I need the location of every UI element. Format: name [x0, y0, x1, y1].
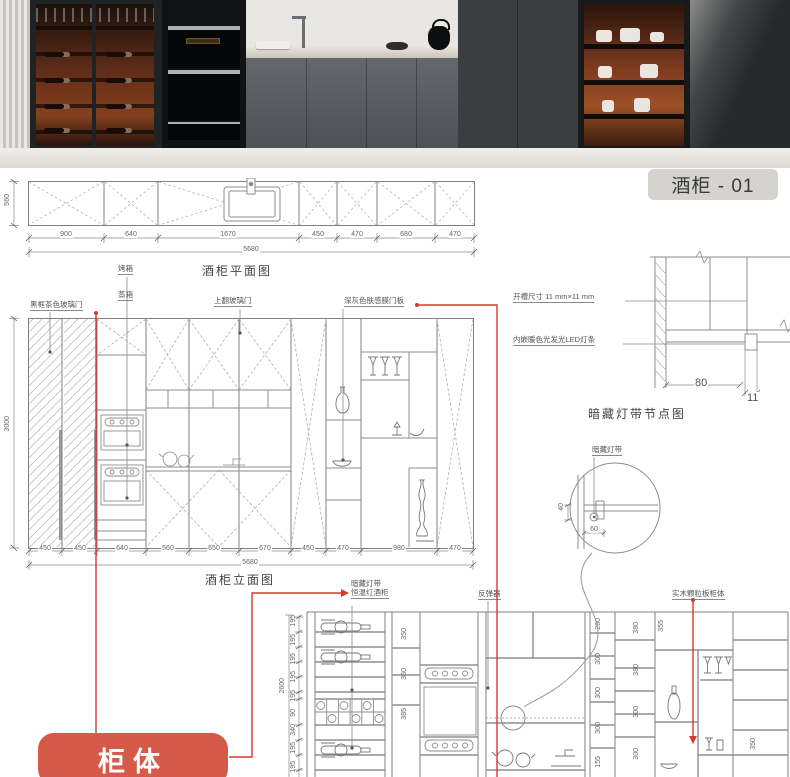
- bottom-elevation-drawing: [283, 580, 790, 777]
- label-oven: 烤箱: [118, 265, 133, 275]
- elev-dim: 450: [38, 545, 52, 552]
- stemware-rack: [36, 8, 154, 22]
- label-rebounder: 反弹器: [478, 590, 501, 600]
- model-badge: 酒柜 - 01: [648, 169, 778, 200]
- display-shelf-unit: [578, 0, 690, 152]
- model-badge-label: 酒柜 - 01: [671, 171, 754, 198]
- plan-dim: 450: [311, 231, 325, 238]
- warming-drawer: [168, 122, 240, 140]
- shelf-decor-glyphs: [333, 357, 434, 541]
- door-handle: [94, 430, 97, 540]
- kitchen-render: [0, 0, 790, 168]
- appliance-handles: [424, 668, 476, 751]
- bottom-dim: 380: [633, 622, 640, 634]
- elev-dim: 670: [258, 545, 272, 552]
- tall-cabinets: [458, 0, 578, 152]
- bottom-dim-350: 350: [750, 738, 757, 750]
- elev-dim: 640: [115, 545, 129, 552]
- elev-dim: 450: [73, 545, 87, 552]
- bottom-dim-355: 355: [658, 620, 665, 632]
- dishware: [598, 66, 612, 78]
- wine-glass-door-right: [96, 4, 154, 146]
- bottom-left-dims: 19519519519519590340195195: [289, 615, 298, 773]
- bottom-dim: 385: [401, 708, 408, 720]
- wine-bottle: [106, 128, 132, 133]
- wine-bottle: [44, 78, 70, 83]
- elev-total-dim: 5680: [241, 559, 259, 566]
- bottom-dim: 280: [595, 618, 602, 630]
- marble-floor: [0, 148, 790, 168]
- sink-symbol: [224, 178, 280, 221]
- display-shelf-interior: [584, 4, 684, 146]
- callout-circle: [501, 706, 525, 730]
- oven-stack-symbol: [97, 355, 146, 540]
- elev-dim: 470: [336, 545, 350, 552]
- elev-dim: 980: [392, 545, 406, 552]
- elev-dim: 560: [161, 545, 175, 552]
- cabinet-seam: [306, 58, 307, 150]
- label-led-strip: 内嵌暖色光发光LED灯条: [513, 336, 595, 346]
- plan-dim: 680: [399, 231, 413, 238]
- bottom-dim: 195: [290, 742, 297, 754]
- detail-dim-11: 11: [746, 392, 759, 404]
- built-in-steam-oven: [168, 70, 240, 120]
- bottom-colA-dims: 350350385: [400, 628, 409, 720]
- black-kettle: [428, 26, 450, 50]
- elevation-title: 酒柜立面图: [205, 571, 275, 588]
- elev-dim: 650: [207, 545, 221, 552]
- cabinet-seam: [416, 58, 417, 150]
- plan-dim: 470: [350, 231, 364, 238]
- bottom-dim: 300: [633, 706, 640, 718]
- dishware: [640, 64, 658, 78]
- wine-bottle: [106, 104, 132, 109]
- base-cabinets: [246, 58, 458, 150]
- built-in-oven: [168, 26, 240, 68]
- detail-dim-80: 80: [694, 377, 708, 389]
- bottom-colC-dims: 380380300300: [632, 622, 641, 760]
- shelf: [584, 114, 684, 119]
- shelf: [584, 80, 684, 85]
- item-glyphs: [492, 657, 732, 769]
- wine-bottle: [106, 78, 132, 83]
- cabinet-body-tag: 柜体: [38, 733, 228, 777]
- bottom-dim: 90: [290, 709, 297, 717]
- bottom-dim: 195: [290, 615, 297, 627]
- bottom-dim: 300: [595, 687, 602, 699]
- elev-dim: 470: [448, 545, 462, 552]
- cabinet-seam: [366, 58, 367, 150]
- bottom-dim: 350: [401, 628, 408, 640]
- bottom-dim: 195: [290, 653, 297, 665]
- door-handle: [59, 430, 62, 540]
- bottom-dim: 300: [595, 722, 602, 734]
- oven-display: [186, 38, 220, 44]
- label-wine-fridge-line: 恒温红酒柜: [351, 589, 389, 599]
- wine-bottle: [106, 52, 132, 57]
- bottom-height-dim: 2600: [279, 678, 286, 694]
- bottom-dim: 195: [290, 634, 297, 646]
- design-board: 酒柜 - 01 900 640 1670 450 470 680 470 568…: [0, 0, 790, 777]
- dishware: [620, 28, 640, 42]
- counter-items: [159, 452, 245, 467]
- cabinet-body-tag-label: 柜体: [98, 740, 168, 777]
- bottom-dim: 300: [633, 748, 640, 760]
- label-slot-size: 开槽尺寸 11 mm×11 mm: [513, 293, 594, 303]
- label-gray-panel: 深灰色肤感膜门板: [344, 297, 404, 307]
- faucet: [302, 16, 305, 48]
- bottom-dim: 300: [595, 653, 602, 665]
- bottom-dim: 155: [595, 756, 602, 768]
- bottom-dim: 195: [290, 690, 297, 702]
- label-hidden-light-fridge: 暗藏灯带 恒温红酒柜: [351, 580, 389, 599]
- bottom-dim: 195: [290, 671, 297, 683]
- wine-bottle: [44, 104, 70, 109]
- label-glass-door: 黑框茶色玻璃门: [30, 301, 83, 311]
- plan-depth-dim: 560: [4, 194, 11, 206]
- label-cabinet-body: 实木颗粒板柜体: [672, 590, 725, 600]
- label-steam-oven: 蒸箱: [118, 291, 133, 301]
- elev-height-dim: 3000: [4, 416, 11, 432]
- oven-column: [162, 0, 246, 150]
- plan-total-dim: 5680: [242, 246, 260, 253]
- wine-glass-door-left: [36, 4, 92, 146]
- faucet-spout: [292, 16, 306, 19]
- cabinet-seam: [517, 0, 518, 152]
- end-panel: [690, 0, 790, 154]
- elevation-drawing: [6, 315, 480, 573]
- counter-dishes: [256, 41, 290, 49]
- plan-dim: 640: [124, 231, 138, 238]
- dishware: [634, 98, 650, 112]
- slat-wall: [0, 0, 30, 150]
- wine-bottle: [44, 52, 70, 57]
- dishware: [596, 30, 612, 42]
- bottom-dim: 350: [401, 668, 408, 680]
- cdetail-dim-40: 40: [558, 503, 565, 511]
- elev-dim: 450: [301, 545, 315, 552]
- plan-dim: 1670: [219, 231, 237, 238]
- wine-cubby-grid: [315, 699, 385, 725]
- bottom-dim: 340: [290, 724, 297, 736]
- fruit-bowl: [386, 42, 408, 50]
- wine-bottle-glyphs: [321, 620, 370, 757]
- dishware: [650, 32, 664, 42]
- dishware: [602, 100, 614, 112]
- detail-title: 暗藏灯带节点图: [588, 405, 686, 422]
- plan-dim: 900: [59, 231, 73, 238]
- label-flip-door: 上翻玻璃门: [214, 297, 252, 307]
- plan-title: 酒柜平面图: [202, 262, 272, 279]
- bottom-colB-dims: 280300300300155: [594, 618, 603, 768]
- bottom-dim: 380: [633, 664, 640, 676]
- wine-bottle: [44, 128, 70, 133]
- light-wedge: [690, 0, 790, 154]
- label-hidden-light: 暗藏灯带: [592, 446, 622, 456]
- plan-dim: 470: [448, 231, 462, 238]
- cdetail-dim-60: 60: [589, 526, 599, 533]
- bottom-dim: 195: [290, 761, 297, 773]
- shelf: [584, 44, 684, 49]
